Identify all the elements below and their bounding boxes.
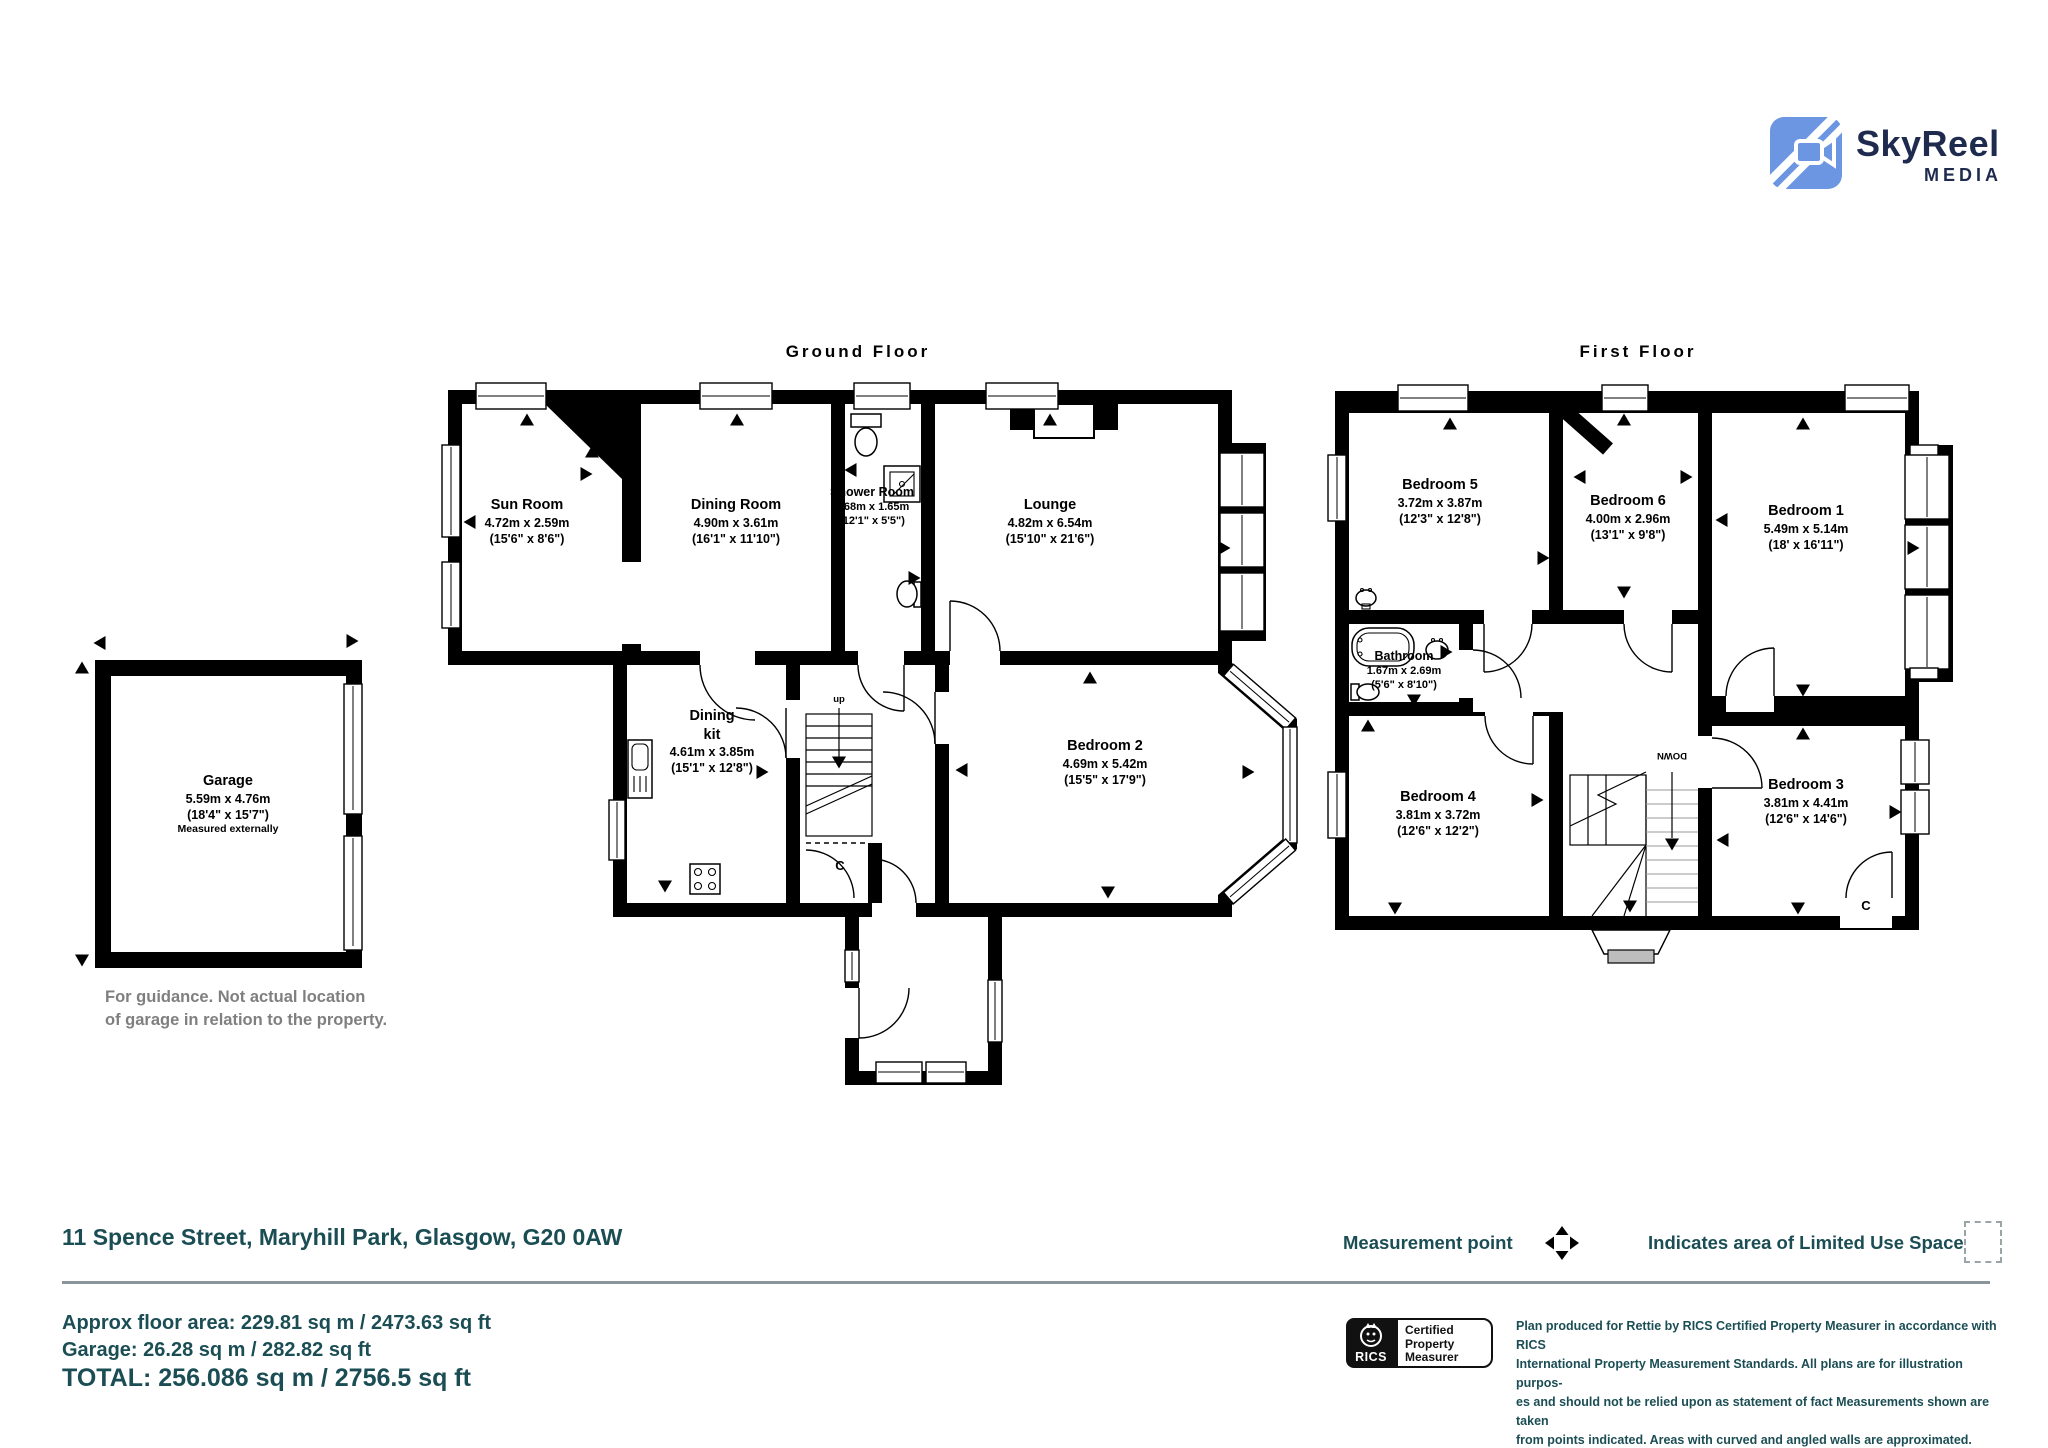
footer-divider	[62, 1281, 1990, 1284]
logo-sub-text: MEDIA	[1856, 165, 2002, 186]
room-label-dining-room: Dining Room 4.90m x 3.61m (16'1" x 11'10…	[691, 496, 781, 547]
room-label-shower-room: Shower Room 3.68m x 1.65m (12'1" x 5'5")	[830, 484, 914, 528]
property-address: 11 Spence Street, Maryhill Park, Glasgow…	[62, 1224, 622, 1251]
landing-window-bump	[1592, 930, 1670, 963]
rics-certified-badge: RICS Certified Property Measurer	[1346, 1318, 1495, 1368]
ground-floor-title: Ground Floor	[786, 342, 931, 362]
kitchen-sink-icon	[628, 740, 652, 798]
room-label-bedroom-3: Bedroom 3 3.81m x 4.41m (12'6" x 14'6")	[1764, 776, 1849, 827]
legend-limited-use-space: Indicates area of Limited Use Space	[1648, 1232, 1964, 1254]
rics-lion-icon	[1346, 1320, 1396, 1352]
room-label-garage: Garage 5.59m x 4.76m (18'4" x 15'7") Mea…	[178, 772, 279, 836]
limited-use-space-icon	[1964, 1221, 2002, 1263]
stove-icon	[690, 864, 720, 894]
first-closet-label: C	[1861, 898, 1870, 913]
garage-area: Garage: 26.28 sq m / 282.82 sq ft	[62, 1339, 371, 1362]
approx-floor-area: Approx floor area: 229.81 sq m / 2473.63…	[62, 1312, 491, 1335]
skyreel-camera-icon	[1770, 117, 1842, 189]
total-area: TOTAL: 256.086 sq m / 2756.5 sq ft	[62, 1364, 471, 1393]
ground-stairs-label: up	[833, 694, 845, 705]
first-floor-title: First Floor	[1579, 342, 1696, 362]
room-label-sun-room: Sun Room 4.72m x 2.59m (15'6" x 8'6")	[485, 496, 570, 547]
floorplan-page: SkyReel MEDIA Ground Floor First Floor S…	[0, 0, 2048, 1448]
garage-guidance-note: For guidance. Not actual location of gar…	[105, 986, 387, 1032]
first-stairs-label: DOWN	[1657, 750, 1687, 761]
legend-measurement-point: Measurement point	[1343, 1232, 1513, 1254]
room-label-bedroom-4: Bedroom 4 3.81m x 3.72m (12'6" x 12'2")	[1396, 788, 1481, 839]
ground-closet-label: C	[835, 858, 844, 873]
measurement-point-icon	[1528, 1209, 1596, 1277]
plan-disclaimer: Plan produced for Rettie by RICS Certifi…	[1516, 1317, 2002, 1448]
rics-logo: RICS	[1346, 1318, 1396, 1368]
room-label-bedroom-5: Bedroom 5 3.72m x 3.87m (12'3" x 12'8")	[1398, 476, 1483, 527]
logo-brand-text: SkyReel	[1856, 123, 2000, 165]
room-label-bedroom-2: Bedroom 2 4.69m x 5.42m (15'5" x 17'9")	[1063, 737, 1148, 788]
camera-glyph	[1796, 139, 1834, 165]
skyreel-logo: SkyReel MEDIA	[1770, 115, 2002, 193]
sink-icon-shower-room	[897, 581, 921, 607]
room-label-lounge: Lounge 4.82m x 6.54m (15'10" x 21'6")	[1006, 496, 1095, 547]
room-label-bathroom: Bathroom 1.67m x 2.69m (5'6" x 8'10")	[1367, 648, 1442, 692]
room-label-bedroom-1: Bedroom 1 5.49m x 5.14m (18' x 16'11")	[1764, 502, 1849, 553]
room-label-bedroom-6: Bedroom 6 4.00m x 2.96m (13'1" x 9'8")	[1586, 492, 1671, 543]
rics-certified-text: Certified Property Measurer	[1396, 1318, 1493, 1368]
room-label-dining-kit: Dining kit 4.61m x 3.85m (15'1" x 12'8")	[670, 707, 755, 776]
